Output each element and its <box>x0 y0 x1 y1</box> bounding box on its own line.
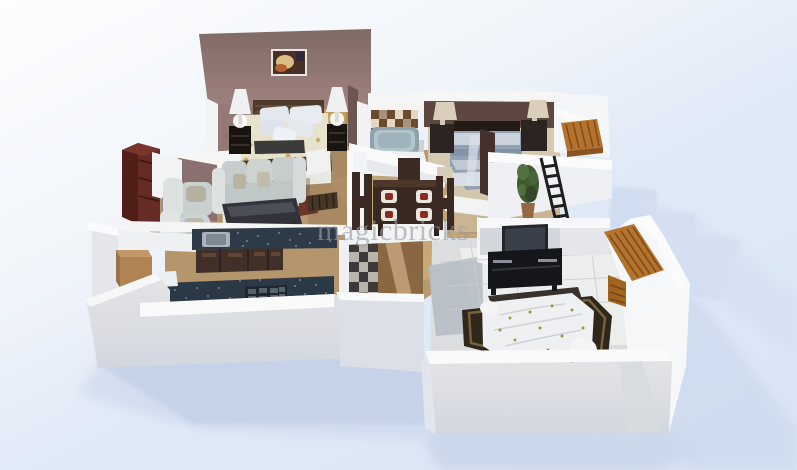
svg-text:magicbricks: magicbricks <box>317 214 469 247</box>
